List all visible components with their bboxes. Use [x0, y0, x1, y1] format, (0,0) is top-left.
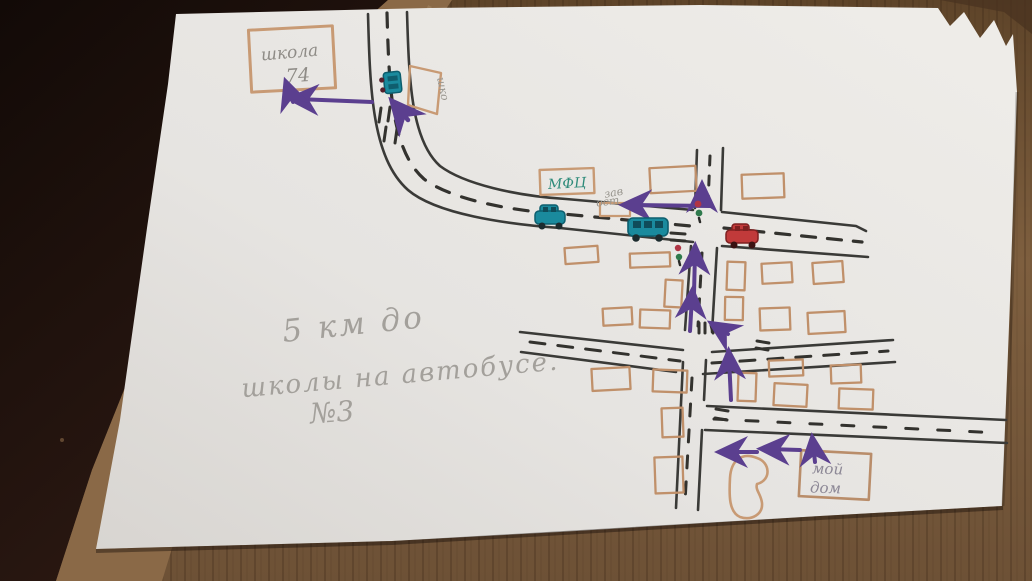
photo-of-hand-drawn-map: школа 74 шко МФЦ зав ост мой дом: [0, 0, 1032, 581]
route-arrow-vertical-1: [694, 253, 695, 294]
school-number: 74: [285, 64, 311, 88]
mfc-label: МФЦ: [547, 175, 588, 193]
signal-green: [676, 254, 682, 260]
home-label-line2: дом: [810, 478, 842, 497]
wheel: [632, 234, 640, 242]
paper-sheet: [96, 5, 1017, 551]
signal-green: [696, 210, 703, 217]
dust-speck: [60, 438, 64, 442]
wheel: [749, 242, 756, 249]
wheel: [731, 242, 738, 249]
wheel: [655, 234, 663, 242]
route-arrow-vertical-2: [690, 297, 692, 331]
wheel: [556, 223, 563, 230]
route-arrow-vertical-3: [729, 358, 731, 400]
signal-red: [675, 245, 681, 251]
paper: [96, 5, 1017, 549]
route-arrow-home-up: [813, 444, 815, 462]
wheel: [539, 223, 546, 230]
route-arrow-home-left-1: [768, 449, 800, 450]
signal-red: [695, 201, 702, 208]
note-line3: №3: [308, 394, 356, 430]
road-centerline: [708, 156, 710, 204]
